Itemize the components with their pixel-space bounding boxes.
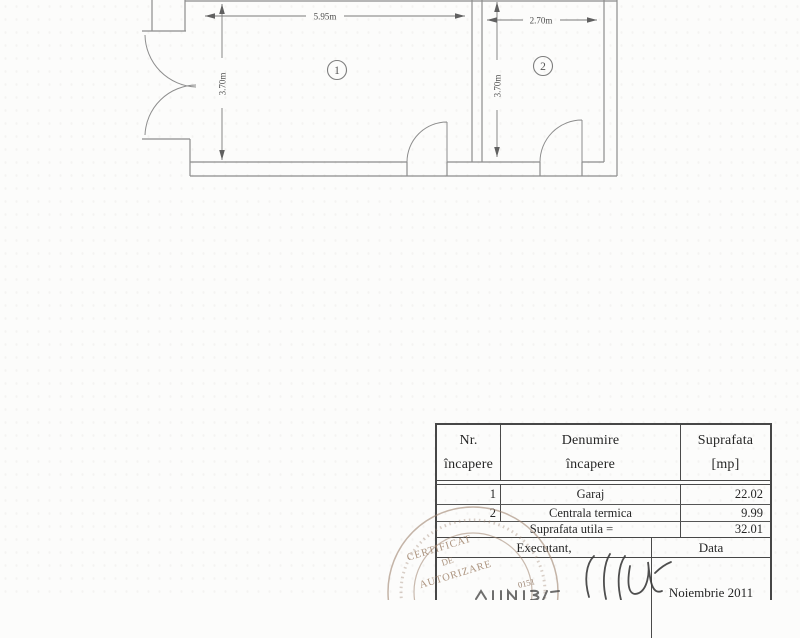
table-row: 2 Centrala termica 9.99 <box>437 504 770 521</box>
row2-area: 9.99 <box>681 505 770 521</box>
room1-door-arc <box>407 122 447 162</box>
garage-door-upper-arc <box>145 35 196 87</box>
header-cell-denumire: Denumire încapere <box>501 425 681 480</box>
header-denumire-line1: Denumire <box>501 433 680 448</box>
header-cell-suprafata: Suprafata [mp] <box>681 425 770 480</box>
row1-nr: 1 <box>437 485 501 504</box>
right-wall <box>604 0 617 176</box>
door-jambs <box>407 162 582 176</box>
total-label: Suprafata utila = <box>437 522 681 537</box>
garage-door-lower-arc <box>145 85 196 135</box>
table-row: 1 Garaj 22.02 <box>437 485 770 504</box>
row2-nr: 2 <box>437 505 501 521</box>
signature-date-row: Noiembrie 2011 <box>437 558 770 638</box>
header-suprafata-line1: Suprafata <box>681 433 770 448</box>
left-wall-lower <box>142 139 190 176</box>
date-cell: Noiembrie 2011 <box>652 558 770 638</box>
header-nr-line2: încapere <box>437 457 500 472</box>
dim-label-room2-width: 2.70m <box>530 16 553 26</box>
total-value: 32.01 <box>681 522 770 537</box>
room2-door-arc <box>540 120 582 162</box>
room2-number: 2 <box>540 61 546 73</box>
header-cell-nr: Nr. încapere <box>437 425 501 480</box>
left-wall-upper <box>142 0 186 31</box>
row1-area: 22.02 <box>681 485 770 504</box>
header-nr-line1: Nr. <box>437 433 500 448</box>
dim-label-room1-width: 5.95m <box>314 12 337 22</box>
area-table: Nr. încapere Denumire încapere Suprafata… <box>435 423 772 600</box>
header-denumire-line2: încapere <box>501 457 680 472</box>
room1-number-badge: 1 <box>328 61 347 80</box>
wall-lines <box>142 0 617 176</box>
room2-number-badge: 2 <box>534 57 553 76</box>
total-row: Suprafata utila = 32.01 <box>437 521 770 538</box>
row2-name: Centrala termica <box>501 505 681 521</box>
data-label: Data <box>652 538 770 557</box>
partition-wall <box>472 0 482 162</box>
dim-label-room1-height: 3.70m <box>218 73 228 96</box>
signature-cell <box>437 558 652 638</box>
executant-label: Executant, <box>437 538 652 557</box>
executant-data-row: Executant, Data <box>437 538 770 558</box>
room1-number: 1 <box>334 65 340 77</box>
header-suprafata-line2: [mp] <box>681 457 770 472</box>
scanned-document-page: { "floorplan": { "room1": { "number": "1… <box>0 0 800 600</box>
dim-label-room2-height: 3.70m <box>493 75 503 98</box>
table-header-row: Nr. încapere Denumire încapere Suprafata… <box>437 425 770 480</box>
row1-name: Garaj <box>501 485 681 504</box>
